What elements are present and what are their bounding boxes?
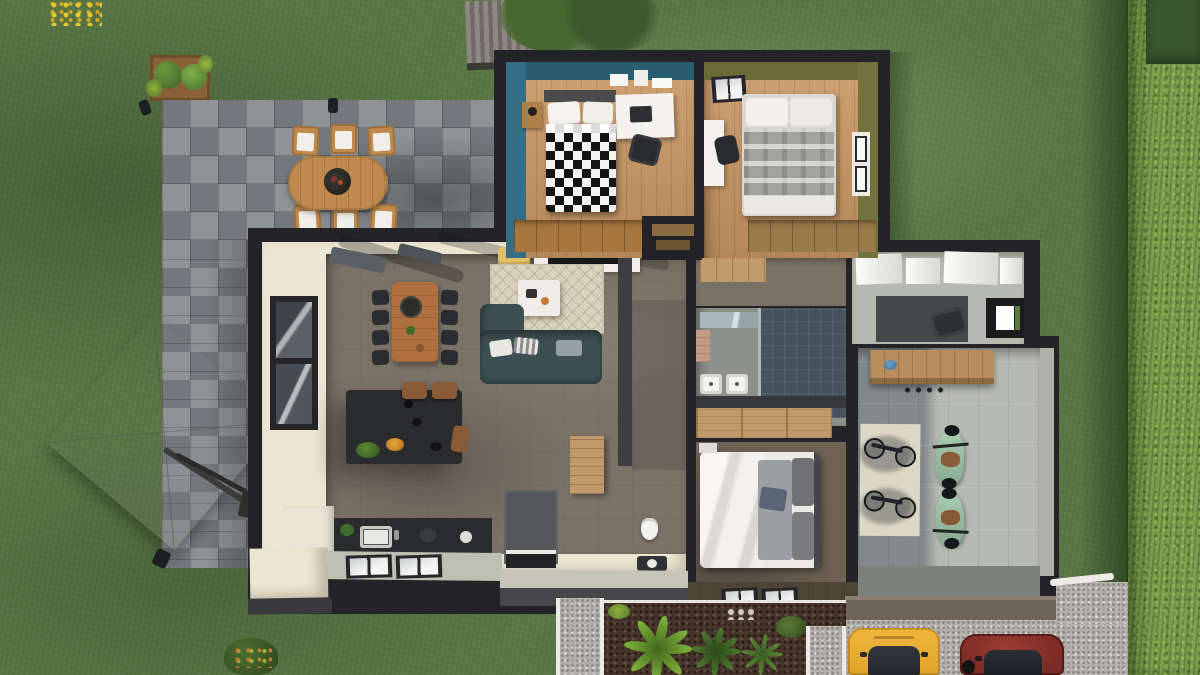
- aerial-floor-plan-render: [0, 0, 1200, 675]
- roof-skylight: [346, 554, 393, 579]
- fruit-bowl-icon: [386, 438, 404, 451]
- dining-chair: [371, 289, 389, 305]
- bed-pillow: [746, 98, 788, 126]
- leafy-plant-icon: [146, 79, 162, 97]
- decor-icon: [416, 344, 424, 352]
- bed-sheet-drape: [700, 452, 764, 568]
- hall-floor-shadow: [632, 300, 686, 470]
- bed-headboard: [544, 90, 616, 102]
- helmet-icon: [884, 360, 897, 370]
- path-light-icon: [328, 98, 338, 113]
- dining-chair: [371, 349, 389, 365]
- terrace-chair: [330, 124, 357, 154]
- decor-icon: [541, 297, 549, 305]
- window-glass: [276, 302, 312, 358]
- window-pane: [855, 166, 867, 192]
- roof-skylight: [396, 554, 443, 579]
- moto-seat: [941, 509, 961, 525]
- dresser: [748, 220, 876, 252]
- tv-icon: [548, 257, 622, 264]
- utility-cabinet: [906, 258, 940, 284]
- wall-posters-icon: [610, 70, 672, 92]
- window-pane: [996, 306, 1014, 330]
- orange-flecks-icon: [232, 646, 272, 668]
- stair-step: [652, 224, 694, 236]
- tool-hooks-icon: [902, 386, 946, 394]
- kitchen-island: [346, 390, 462, 464]
- car-hood-line: [874, 636, 914, 639]
- hedge-shadow: [1078, 0, 1128, 614]
- dining-chair: [440, 289, 458, 305]
- bicycle: [861, 481, 917, 529]
- hedge: [1126, 0, 1200, 675]
- utility-window: [986, 298, 1024, 338]
- car-windshield: [868, 646, 920, 675]
- plant-icon: [340, 524, 354, 536]
- bathroom-mirror: [700, 312, 758, 328]
- drain-icon: [709, 382, 713, 386]
- moto-wheel: [944, 538, 960, 550]
- drain-icon: [735, 382, 739, 386]
- kettle-icon: [460, 531, 472, 543]
- side-path: [806, 626, 846, 675]
- desk: [615, 93, 675, 139]
- vanity-basin: [700, 374, 722, 394]
- faucet-icon: [394, 530, 399, 540]
- window-pane: [855, 136, 867, 162]
- yellow-flowers: [48, 0, 102, 26]
- bar-stool: [432, 382, 457, 399]
- sofa-seat: [480, 330, 602, 384]
- vanity-wood-front: [696, 408, 832, 438]
- garage-apron: [858, 566, 1040, 596]
- hall-partition-wall: [618, 254, 632, 466]
- red-car: [960, 634, 1064, 675]
- checkered-duvet: [546, 124, 616, 212]
- sofa-cushion: [489, 339, 513, 358]
- sofa-cushion-striped: [513, 337, 539, 355]
- terrace-chair: [291, 125, 320, 156]
- stones-icon: [726, 608, 754, 620]
- decor-icon: [430, 442, 442, 451]
- bed-pillow: [792, 458, 814, 506]
- master-nightstand: [699, 443, 717, 453]
- decor-icon: [412, 418, 422, 426]
- lamp-icon: [528, 107, 537, 116]
- vanity-basin: [726, 374, 748, 394]
- driveway-upper: [1056, 582, 1128, 624]
- grill-tray-icon: [324, 168, 351, 195]
- bicycle: [862, 430, 916, 476]
- basin-bowl-icon: [647, 559, 657, 568]
- sofa-cushion: [556, 340, 582, 356]
- front-door-leaf: [506, 554, 556, 568]
- window-green-reflection: [1015, 306, 1020, 330]
- sprout-plant-icon: [608, 604, 630, 619]
- toilet: [641, 518, 658, 540]
- front-path: [556, 598, 604, 675]
- bar-stool: [402, 382, 427, 399]
- hand-basin: [637, 556, 667, 571]
- motorcycle: [931, 489, 970, 549]
- terracotta-tile-strip: [696, 330, 710, 362]
- pot-icon: [420, 528, 436, 542]
- hall-wardrobe: [570, 436, 604, 494]
- table-tray-icon: [400, 296, 422, 318]
- dining-chair: [371, 329, 389, 345]
- yellow-car: [848, 628, 940, 675]
- laptop-icon: [630, 106, 653, 123]
- hedge-dark-square: [1146, 0, 1200, 64]
- berries-icon: [331, 176, 337, 182]
- car-window-band: [984, 650, 1042, 675]
- bed-pillow: [792, 512, 814, 560]
- living-window-west: [270, 296, 318, 430]
- house-shadow: [888, 52, 916, 264]
- facade-base-dark: [248, 597, 332, 614]
- kitchen-sink: [360, 526, 392, 548]
- bed-pillow: [790, 98, 832, 126]
- duvet-white-fold: [744, 196, 834, 214]
- dining-chair: [440, 349, 458, 365]
- duvet-fold: [546, 124, 616, 133]
- herb-plant-icon: [356, 442, 380, 458]
- car-mirror-icon: [921, 652, 928, 657]
- berries-icon: [338, 180, 343, 185]
- headboard: [814, 452, 820, 568]
- moto-seat: [941, 452, 961, 468]
- hall-doorway: [642, 216, 702, 260]
- utility-cabinet: [943, 251, 998, 285]
- dining-chair: [440, 309, 458, 325]
- bed-navy-cushion: [759, 486, 788, 511]
- planter-box: [150, 55, 210, 101]
- terrace-chair: [367, 125, 396, 156]
- dining-chair: [440, 329, 458, 345]
- decor-icon: [526, 289, 537, 298]
- utility-cabinet: [1000, 258, 1022, 284]
- stair-step: [656, 240, 690, 250]
- car-mirror-icon: [860, 652, 867, 657]
- decor-icon: [406, 326, 415, 335]
- motorcycle: [930, 427, 969, 489]
- bed-pillow: [582, 101, 613, 125]
- car-wheel: [962, 660, 975, 674]
- corner-shrub: [224, 638, 278, 675]
- dresser: [514, 220, 644, 252]
- bush-icon: [776, 616, 806, 638]
- bed-pillow: [547, 101, 580, 125]
- corridor-console: [700, 258, 766, 282]
- kitchen-counter: [334, 518, 492, 554]
- leafy-plant-icon: [198, 55, 213, 73]
- car-mirror-icon: [975, 656, 982, 661]
- coffee-table: [518, 280, 560, 316]
- vanity-counter: [696, 396, 846, 408]
- window-glass: [276, 364, 312, 424]
- decor-icon: [404, 400, 413, 408]
- master-bed: [700, 452, 820, 568]
- garage-east-wall: [1040, 348, 1054, 576]
- bedroom-window: [852, 132, 870, 196]
- plaid-duvet: [744, 128, 834, 200]
- dining-table: [392, 282, 438, 362]
- dining-chair: [371, 309, 389, 325]
